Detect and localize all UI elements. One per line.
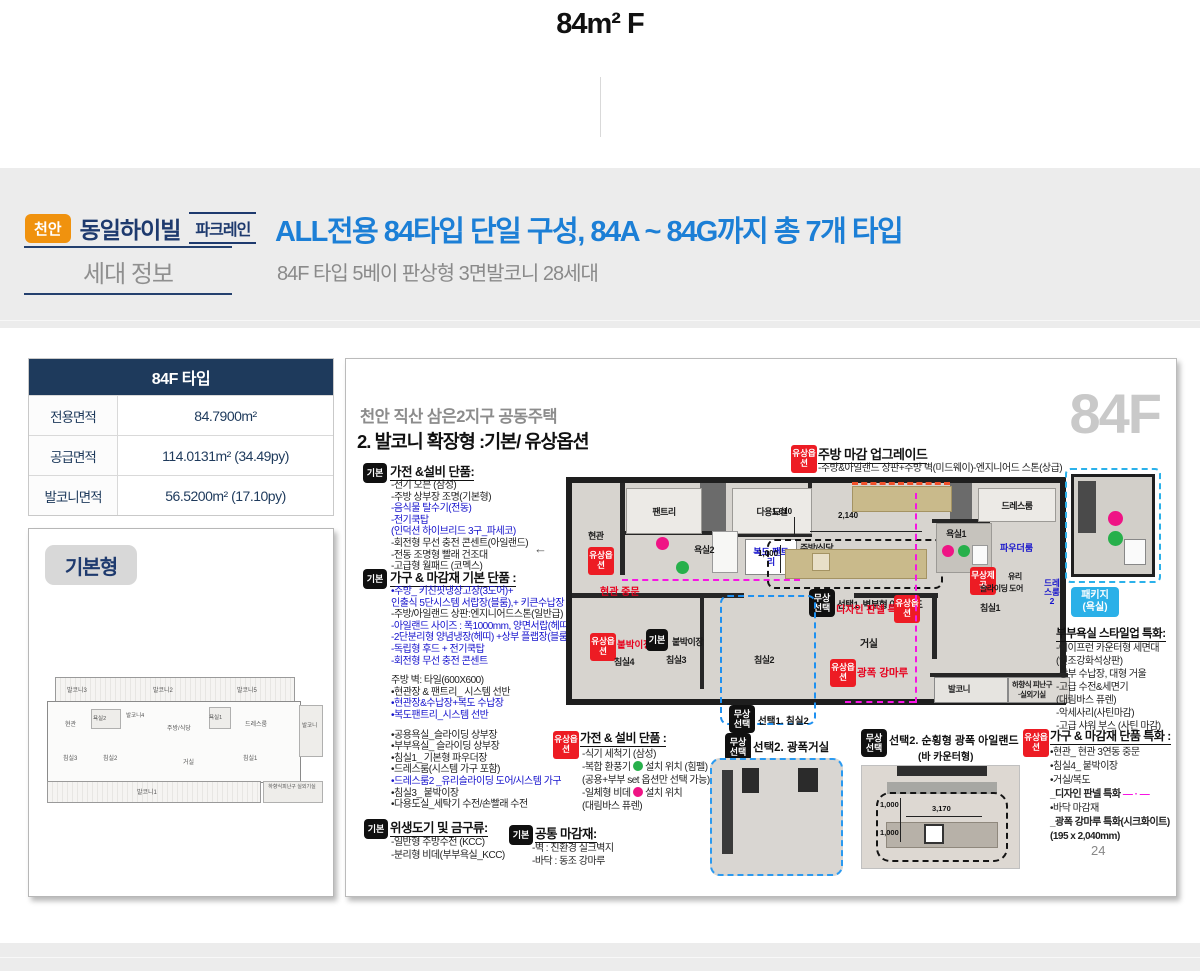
list-item: •침실1_ 기본형 파우더장 <box>391 753 571 765</box>
shaft-block <box>950 483 972 523</box>
bath-package-zone <box>1065 468 1161 583</box>
paid-option-badge: 유상옵션 <box>830 659 856 687</box>
basic-type-tag: 기본형 <box>45 545 137 585</box>
list-item: -독립형 후드 + 전기쿡탑 <box>391 644 571 656</box>
list-item: •드레스룸(시스템 가구 포함) <box>391 764 571 776</box>
floorplan: 팬트리 다용도실 드레스룸 현관 유상옵션 욕실2 복도 팬트리 현관 중문 <box>566 477 1066 705</box>
room-label: 거실 <box>183 757 194 766</box>
green-dot <box>958 545 970 557</box>
room-label: 침실2 <box>754 653 774 666</box>
list-item: 주방 벽: 타일(600X600) <box>391 675 571 687</box>
table-row: 공급면적 114.0131m² (34.49py) <box>29 435 333 475</box>
left-arrow-icon: ← <box>534 541 547 556</box>
glass-door-label: 슬라이딩 도어 <box>980 583 1023 594</box>
list-item: -아일랜드 사이즈 : 폭1000mm, 양면서랍(헤띠) <box>391 621 571 633</box>
wall-segment <box>620 483 625 575</box>
dimension-label: 3,170 <box>932 804 951 813</box>
dimension-arrow <box>906 816 982 817</box>
group1-list: -전기 오븐 (삼성) -주방 상부장 조명(기본형) -음식물 탈수기(전동)… <box>391 480 528 573</box>
green-dot <box>1108 531 1123 546</box>
room-label: ·실외기실 <box>1018 689 1046 700</box>
paid-option-badge: 유상옵션 <box>1023 729 1049 757</box>
paid-option-badge: 유상옵션 <box>553 731 579 759</box>
wall-segment <box>742 768 759 793</box>
room-pantry: 팬트리 <box>626 488 702 534</box>
headline: ALL전용 84타입 단일 구성, 84A ~ 84G까지 총 7개 타입 <box>275 208 902 250</box>
dimension-label: 1,010 <box>772 507 792 516</box>
bathtub <box>712 531 738 573</box>
green-dot <box>633 761 643 771</box>
item-text: 설치 위치 <box>645 788 682 799</box>
bath-pkg-list: -에이프런 카운터형 세면대 (인조강화석상판) -상부 수납장, 대형 거울 … <box>1056 642 1161 733</box>
balcony-box <box>934 677 1008 703</box>
dimension-arrow <box>900 798 901 842</box>
room-label: 침실3 <box>63 753 77 762</box>
entrance-door-label: 현관 중문 <box>600 583 640 598</box>
brand-underline <box>24 246 232 248</box>
list-item: •복도팬트리_시스템 선반 <box>391 710 571 722</box>
group3-list: -일반형 주방수전 (KCC) -분리형 비데(부부욕실_KCC) <box>391 836 505 862</box>
list-item: •침실4_ 붙박이장 <box>1050 760 1170 774</box>
dimension-arrow <box>794 517 795 537</box>
panel-section-title: 2. 발코니 확장형 :기본/ 유상옵션 <box>357 428 589 454</box>
appliance-opt-title: 가전 & 설비 단품 : <box>580 729 666 747</box>
dimension-label: 1,000 <box>758 549 778 558</box>
mini-balcony-strip-top <box>55 677 295 703</box>
item-text: 설치 위치 (힘펠) <box>645 762 707 773</box>
wall-segment <box>722 770 733 854</box>
table-row: 발코니면적 56.5200m² (17.10py) <box>29 475 333 515</box>
select2-living-label: 선택2. 광폭거실 <box>753 739 829 755</box>
room-label: 침실4 <box>614 655 634 668</box>
room-label: 거실 <box>860 635 877 650</box>
list-item: •드레스룸2 _유리슬라이딩 도어/시스템 가구 <box>391 776 571 788</box>
list-item: -전기쿡탑 <box>391 515 528 527</box>
list-item: -에이프런 카운터형 세면대 <box>1056 642 1161 655</box>
toilet <box>1124 539 1146 565</box>
room-label: 발코니 <box>302 721 317 729</box>
room-label: 주방/식당 <box>167 723 191 732</box>
list-item: •침실3_ 붙박이장 <box>391 788 571 800</box>
spec-table: 84F 타입 전용면적 84.7900m² 공급면적 114.0131m² (3… <box>28 358 334 516</box>
list-item: -2단분리형 양념냉장(헤띠) +상부 플랩장(블룸) <box>391 632 571 644</box>
list-item: (공용+부부 set 옵션만 선택 가능) <box>582 774 710 787</box>
project-title: 천안 직산 삼은2지구 공동주택 <box>360 403 557 427</box>
room-label: 드레스룸2 <box>1042 579 1062 606</box>
free-select-badge: 무상선택 <box>725 733 751 761</box>
list-item: 인출식 5단시스템 서랍장(블룸),+ 키큰수납장 <box>391 598 571 610</box>
list-item: -복합 환풍기 설치 위치 (힘펠) <box>582 761 710 774</box>
room-label: 욕실1 <box>946 527 966 540</box>
list-item: _광폭 강마루 특화(시크화이트) <box>1050 816 1170 830</box>
brand-name: 동일하이빌 <box>80 211 181 245</box>
list-item: -회전형 무선 충전 콘센트 <box>391 656 571 668</box>
paid-option-badge: 유상옵션 <box>588 547 614 575</box>
group4-list: -벽 : 친환경 실크벽지 -바닥 : 동조 강마루 <box>532 842 614 868</box>
brand-lockup: 천안 동일하이빌 파크레인 <box>25 211 256 245</box>
kitchen-counter <box>852 486 952 512</box>
brand-tag: 파크레인 <box>189 212 256 244</box>
list-item: •주방_ 키친핏냉장고장(3도어)+ <box>391 586 571 598</box>
pink-dot <box>942 545 954 557</box>
list-item: -전기 오븐 (삼성) <box>391 480 528 492</box>
dimension-label: 1,000 <box>880 800 899 809</box>
basic-badge: 기본 <box>363 463 387 483</box>
room-label: 드레스룸 <box>245 719 267 728</box>
room-label: 현관 <box>65 719 76 728</box>
list-item: (195 x 2,040mm) <box>1050 830 1170 844</box>
room-label: 욕실1 <box>209 713 222 721</box>
item-text: -복합 환풍기 <box>582 762 631 773</box>
page-title: 84m² F <box>0 8 1200 41</box>
wall-segment <box>798 768 818 792</box>
room-label: 팬트리 <box>652 505 675 518</box>
appliance-opt-list: -식기 세척기 (삼성) -복합 환풍기 설치 위치 (힘펠) (공용+부부 s… <box>582 748 710 813</box>
spec-label: 전용면적 <box>29 396 118 435</box>
select1-bed2-label: 선택1. 침실2 <box>758 713 809 727</box>
wide-floor-label: 광폭 강마루 <box>857 665 908 680</box>
room-label: 발코니 <box>948 683 970 695</box>
list-item: •현관장&수납장+복도 수납장 <box>391 698 571 710</box>
room-dress: 드레스룸 <box>978 488 1056 522</box>
subheadline: 84F 타입 5베이 판상형 3면발코니 28세대 <box>277 257 598 286</box>
list-item: •현관장 & 팬트리_ 시스템 선반 <box>391 687 571 699</box>
wall-segment <box>897 766 987 776</box>
bath-detail-image <box>1071 474 1155 577</box>
list-item: -악세사리(사틴마감) <box>1056 707 1161 720</box>
package-badge-line: (욕실) <box>1082 602 1107 614</box>
green-dot <box>676 561 689 574</box>
room-label: 침실1 <box>243 753 257 762</box>
pink-dot <box>633 787 643 797</box>
dimension-label: 1,000 <box>880 828 899 837</box>
room-label: 발코니1 <box>137 787 157 796</box>
list-item: -고급 수전&세면기 <box>1056 681 1161 694</box>
room-label: 발코니5 <box>237 685 257 694</box>
group3-title: 위생도기 및 금구류: <box>390 817 488 837</box>
list-item: -식기 세척기 (삼성) <box>582 748 710 761</box>
basic-plan-box: 기본형 발코니3 발코니2 발코니5 현관 욕실2 발코니4 주방/식당 욕실1… <box>28 528 334 897</box>
paid-option-badge: 유상옵션 <box>791 445 817 473</box>
list-item: -일체형 비데 설치 위치 <box>582 787 710 800</box>
sink <box>972 545 988 565</box>
band-inner-line <box>0 320 1200 321</box>
list-item: •거실/복도 <box>1050 774 1170 788</box>
magenta-line-sample: — · — <box>1123 789 1149 800</box>
room-label: 침실2 <box>103 753 117 762</box>
spec-value: 114.0131m² (34.49py) <box>118 436 333 475</box>
room-label: 발코니4 <box>126 713 146 719</box>
footer-line <box>0 957 1200 958</box>
spec-value: 84.7900m² <box>118 396 333 435</box>
section-underline <box>24 293 232 295</box>
basic-badge: 기본 <box>363 569 387 589</box>
basic-badge: 기본 <box>646 629 668 651</box>
list-item: •부부욕실_ 슬라이딩 상부장 <box>391 741 571 753</box>
room-label: 현관 <box>588 529 604 542</box>
list-item: -벽 : 친환경 실크벽지 <box>532 842 614 855</box>
spec-label: 공급면적 <box>29 436 118 475</box>
list-item: -일반형 주방수전 (KCC) <box>391 836 505 849</box>
mini-plan-body <box>47 701 301 783</box>
list-item: -회전형 무선 충전 콘센트(아일랜드) <box>391 538 528 550</box>
powder-room-label: 파우더룸 <box>1000 541 1033 554</box>
island-sink <box>924 824 944 844</box>
wall-segment <box>572 593 744 598</box>
free-select-badge: 무상선택 <box>861 729 887 757</box>
pink-dot <box>656 537 669 550</box>
wall-segment <box>1078 481 1096 533</box>
island-counter <box>785 549 927 579</box>
list-item: _디자인 판넬 특화 — · — <box>1050 788 1170 802</box>
pink-dot <box>1108 511 1123 526</box>
room-label: 발코니3 <box>67 685 87 694</box>
select2-island-sublabel: (바 카운터형) <box>918 748 973 763</box>
list-item: •현관_ 현관 3연동 중문 <box>1050 746 1170 760</box>
group2-list: •주방_ 키친핏냉장고장(3도어)+ 인출식 5단시스템 서랍장(블룸),+ 키… <box>391 586 571 811</box>
bath-pkg-title: 부부욕실 스타일업 특화: <box>1056 625 1166 642</box>
list-item: -주방 상부장 조명(기본형) <box>391 492 528 504</box>
main-panel: 천안 직산 삼은2지구 공동주택 2. 발코니 확장형 :기본/ 유상옵션 84… <box>345 358 1177 897</box>
spec-label: 발코니면적 <box>29 476 118 515</box>
living-photo <box>710 758 843 876</box>
page: 84m² F 천안 동일하이빌 파크레인 세대 정보 ALL전용 84타입 단일… <box>0 0 1200 971</box>
list-item: (인덕션 하이브리드 3구_파세코) <box>391 526 528 538</box>
spec-table-header: 84F 타입 <box>29 359 333 395</box>
package-badge-line: 패키지 <box>1081 590 1109 602</box>
page-number: 24 <box>1091 843 1105 858</box>
island-photo: 1,000 3,170 1,000 <box>861 765 1020 869</box>
room-label: 욕실2 <box>93 714 106 722</box>
table-row: 전용면적 84.7900m² <box>29 395 333 435</box>
island-sink <box>812 553 830 571</box>
list-item: -전동 조명형 빨래 건조대 <box>391 550 528 562</box>
list-item: -상부 수납장, 대형 거울 <box>1056 668 1161 681</box>
furniture-opt-list: •현관_ 현관 3연동 중문 •침실4_ 붙박이장 •거실/복도 _디자인 판넬… <box>1050 746 1170 844</box>
group4-title: 공통 마감재: <box>535 823 597 843</box>
list-item: (대림바스 퓨렌) <box>1056 694 1161 707</box>
builtin-closet-label: 붙박이장 <box>672 635 703 648</box>
room-label: 욕실2 <box>694 543 714 556</box>
section-label: 세대 정보 <box>24 254 232 289</box>
glass-door-label: 유리 <box>1008 571 1022 582</box>
room-label: 발코니2 <box>153 685 173 694</box>
dimension-arrow <box>810 531 922 532</box>
type-watermark: 84F <box>1070 381 1161 446</box>
group2-title: 가구 & 마감재 기본 단품 : <box>390 567 516 587</box>
room-label: 침실3 <box>666 653 686 666</box>
room-label: 침실1 <box>980 601 1000 614</box>
mini-floorplan: 발코니3 발코니2 발코니5 현관 욕실2 발코니4 주방/식당 욕실1 드레스… <box>41 647 321 817</box>
list-item: •공용욕실_슬라이딩 상부장 <box>391 730 571 742</box>
list-item: -바닥 : 동조 강마루 <box>532 855 614 868</box>
list-item: •바닥 마감재 <box>1050 802 1170 816</box>
magenta-zone-line <box>845 701 915 703</box>
list-item: •다용도실_세탁기 수전/손빨래 수전 <box>391 799 571 811</box>
select2-island-label: 선택2. 순횡형 광폭 아일랜드 <box>889 732 1019 748</box>
wall-segment <box>932 595 937 659</box>
room-label: 하향식피난구 실외기실 <box>266 784 318 791</box>
basic-badge: 기본 <box>364 819 388 839</box>
list-item: -분리형 비데(부부욕실_KCC) <box>391 849 505 862</box>
spec-value: 56.5200m² (17.10py) <box>118 476 333 515</box>
kitchen-upgrade-line <box>852 482 950 485</box>
shaft-block <box>700 483 726 531</box>
furniture-opt-title: 가구 & 마감재 단품 특화 : <box>1050 727 1171 745</box>
magenta-zone-line <box>915 493 917 703</box>
kitchen-upgrade-title: 주방 마감 업그레이드 <box>818 444 927 464</box>
list-item: -주방/아일랜드 상판:엔지니어드스톤(일반급) <box>391 609 571 621</box>
divider <box>600 77 601 137</box>
list-item: (인조강화석상판) <box>1056 655 1161 668</box>
package-badge: 패키지 (욕실) <box>1071 587 1119 617</box>
dimension-label: 2,140 <box>838 511 858 520</box>
paid-option-badge: 유상옵션 <box>590 633 616 661</box>
basic-badge: 기본 <box>509 825 533 845</box>
region-badge: 천안 <box>25 214 71 243</box>
item-text: _디자인 판넬 특화 <box>1050 789 1121 800</box>
group1-title: 가전 &설비 단품: <box>390 461 474 481</box>
free-select-badge: 무상선택 <box>729 705 755 733</box>
mini-balcony-side <box>299 705 323 757</box>
item-text: -일체형 비데 <box>582 788 631 799</box>
list-item: -음식물 탈수기(전동) <box>391 503 528 515</box>
room-label: 드레스룸 <box>1001 499 1032 512</box>
dimension-arrow <box>780 545 781 573</box>
kitchen-upgrade-desc: -주방&아일랜드 상판+주방 벽(미드웨이)-엔지니어드 스톤(상급) <box>818 463 1062 475</box>
list-item: (대림바스 퓨렌) <box>582 800 710 813</box>
